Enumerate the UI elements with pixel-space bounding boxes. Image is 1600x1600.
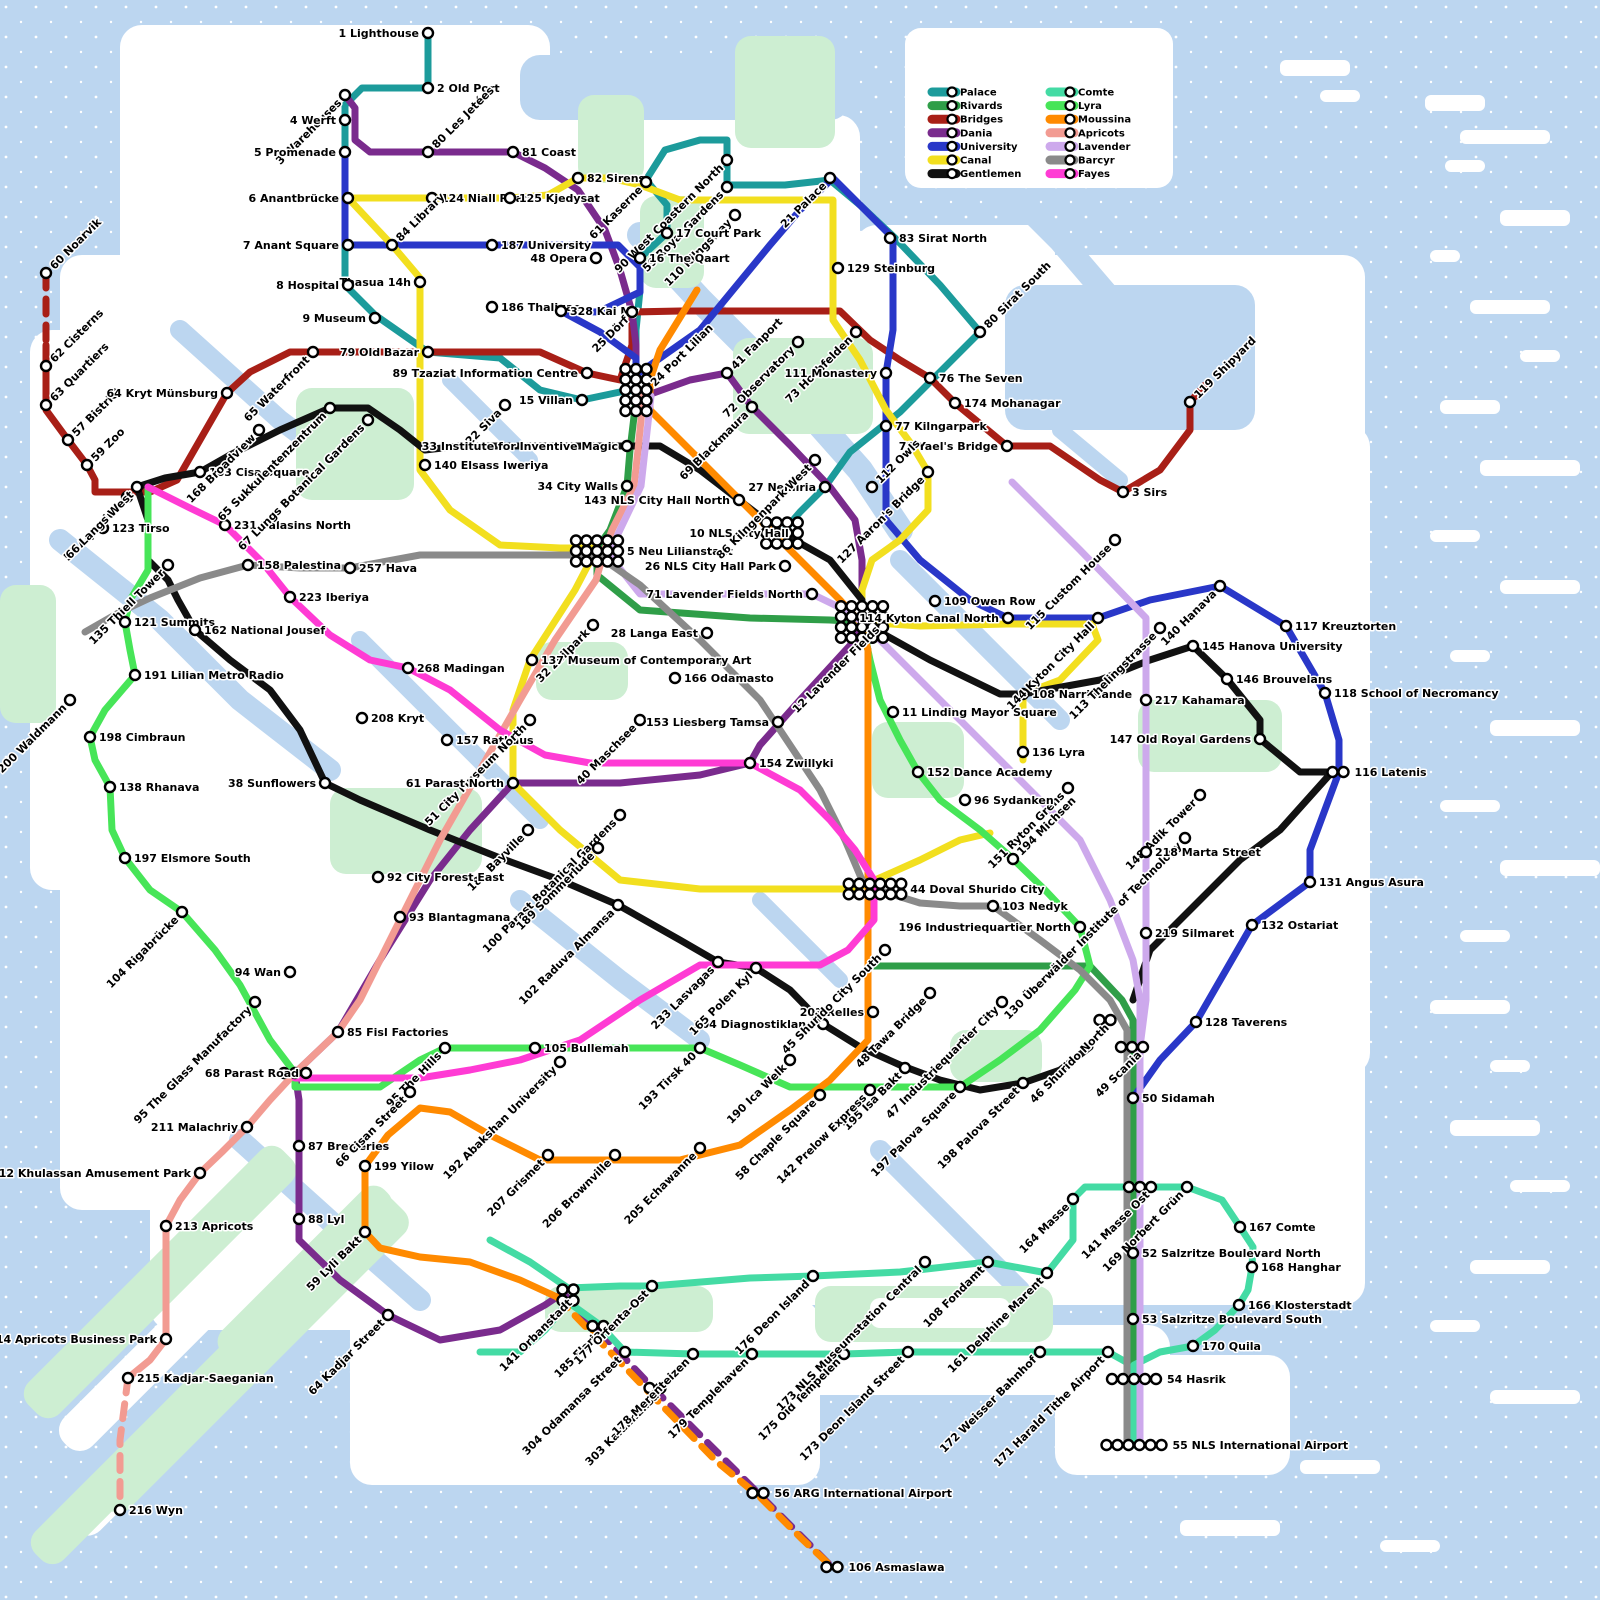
svg-text:145 Hanova University: 145 Hanova University xyxy=(1202,640,1343,653)
svg-text:83 Sirat North: 83 Sirat North xyxy=(899,232,987,245)
station-64-kryt-m-nsburg[interactable]: 64 Kryt Münsburg xyxy=(106,387,232,400)
station-77-kilngarpark[interactable]: 77 Kilngarpark xyxy=(881,420,987,433)
svg-text:Canal: Canal xyxy=(960,156,991,167)
svg-text:143 NLS City Hall North: 143 NLS City Hall North xyxy=(584,494,730,507)
svg-text:Comte: Comte xyxy=(1078,88,1114,99)
svg-text:125 Kjedysat: 125 Kjedysat xyxy=(519,192,600,205)
station-38-sunflowers[interactable]: 38 Sunflowers xyxy=(228,777,330,790)
svg-text:197 Elsmore South: 197 Elsmore South xyxy=(134,852,251,865)
station-132-ostariat[interactable]: 132 Ostariat xyxy=(1247,919,1338,932)
station-217-kahamara[interactable]: 217 Kahamara xyxy=(1141,694,1245,707)
svg-text:68 Parast Road: 68 Parast Road xyxy=(205,1067,299,1080)
station-153-liesberg-tamsa[interactable]: 153 Liesberg Tamsa xyxy=(646,716,783,729)
svg-text:61 Parast North: 61 Parast North xyxy=(406,777,504,790)
svg-text:106 Asmaslawa: 106 Asmaslawa xyxy=(849,1561,945,1574)
svg-text:103 Nedyk: 103 Nedyk xyxy=(1002,900,1069,913)
station-26-nls-city-hall-park[interactable]: 26 NLS City Hall Park xyxy=(645,560,790,573)
svg-text:174 Mohanagar: 174 Mohanagar xyxy=(964,397,1061,410)
station-143-nls-city-hall-north[interactable]: 143 NLS City Hall North xyxy=(584,494,744,507)
svg-text:88 Lyl: 88 Lyl xyxy=(308,1213,344,1226)
station-111-monastery[interactable]: 111 Monastery xyxy=(785,367,891,380)
svg-text:105 Bullemah: 105 Bullemah xyxy=(544,1042,629,1055)
station-61-parast-north[interactable]: 61 Parast North xyxy=(406,777,518,790)
station-11-linding-mayor-square[interactable]: 11 Linding Mayor Square xyxy=(888,706,1057,719)
svg-text:218 Marta Street: 218 Marta Street xyxy=(1155,846,1261,859)
svg-text:9 Museum: 9 Museum xyxy=(302,312,366,325)
station-186-thaligao[interactable]: 186 Thaligao xyxy=(487,301,581,314)
svg-text:University: University xyxy=(960,142,1018,153)
svg-text:89 Tzaziat Information Centre: 89 Tzaziat Information Centre xyxy=(393,367,578,380)
station-88-lyl[interactable]: 88 Lyl xyxy=(294,1213,344,1226)
station-125-kjedysat[interactable]: 125 Kjedysat xyxy=(505,192,600,205)
svg-text:215 Kadjar-Saeganian: 215 Kadjar-Saeganian xyxy=(137,1372,274,1385)
svg-text:16 The Qaart: 16 The Qaart xyxy=(649,252,730,265)
station-96-sydanken[interactable]: 96 Sydanken xyxy=(960,794,1054,807)
station-211-malachriy[interactable]: 211 Malachriy xyxy=(151,1121,252,1134)
svg-text:116 Latenis: 116 Latenis xyxy=(1355,766,1428,779)
svg-text:138 Rhanava: 138 Rhanava xyxy=(119,781,199,794)
svg-text:76 The Seven: 76 The Seven xyxy=(939,372,1023,385)
svg-text:117 Kreuztorten: 117 Kreuztorten xyxy=(1295,620,1396,633)
station-16-the-qaart[interactable]: 16 The Qaart xyxy=(635,252,730,265)
station-218-marta-street[interactable]: 218 Marta Street xyxy=(1141,846,1261,859)
station-1-lighthouse[interactable]: 1 Lighthouse xyxy=(339,27,433,40)
station-137-museum-of-contemporary-art[interactable]: 137 Museum of Contemporary Art xyxy=(527,654,751,667)
station-197-elsmore-south[interactable]: 197 Elsmore South xyxy=(120,852,251,865)
station-114-kyton-canal-north[interactable]: 114 Kyton Canal North xyxy=(859,612,1013,625)
svg-text:Gentlemen: Gentlemen xyxy=(960,169,1021,180)
station-213-apricots[interactable]: 213 Apricots xyxy=(161,1220,254,1233)
svg-text:166 Klosterstadt: 166 Klosterstadt xyxy=(1248,1299,1352,1312)
station-106-asmaslawa[interactable]: 106 Asmaslawa xyxy=(822,1561,945,1574)
svg-text:Rivards: Rivards xyxy=(960,101,1002,112)
station-138-rhanava[interactable]: 138 Rhanava xyxy=(105,781,199,794)
svg-text:52 Salzritze Boulevard North: 52 Salzritze Boulevard North xyxy=(1142,1247,1321,1260)
svg-text:92 City Forest East: 92 City Forest East xyxy=(387,871,504,884)
svg-text:3 Sirs: 3 Sirs xyxy=(1132,486,1168,499)
svg-text:191 Lilian Metro Radio: 191 Lilian Metro Radio xyxy=(144,669,284,682)
svg-text:170 Quila: 170 Quila xyxy=(1202,1340,1261,1353)
station-212-khulassan-amusement-park[interactable]: 212 Khulassan Amusement Park xyxy=(0,1167,205,1180)
station-215-kadjar-saeganian[interactable]: 215 Kadjar-Saeganian xyxy=(123,1372,274,1385)
station-268-madingan[interactable]: 268 Madingan xyxy=(403,662,505,675)
station-198-cimbraun[interactable]: 198 Cimbraun xyxy=(85,731,185,744)
svg-text:118 School of Necromancy: 118 School of Necromancy xyxy=(1334,687,1499,700)
svg-text:Palace: Palace xyxy=(960,88,997,99)
svg-text:196 Industriequartier North: 196 Industriequartier North xyxy=(899,921,1071,934)
svg-text:Lavender: Lavender xyxy=(1078,142,1130,153)
station-85-fisl-factories[interactable]: 85 Fisl Factories xyxy=(333,1026,449,1039)
station-5-promenade[interactable]: 5 Promenade xyxy=(254,146,350,159)
station-231-palasins-north[interactable]: 231 Palasins North xyxy=(220,519,351,532)
svg-text:6 Anantbrücke: 6 Anantbrücke xyxy=(249,192,339,205)
svg-text:137 Museum of Contemporary Art: 137 Museum of Contemporary Art xyxy=(541,654,751,667)
station-168-hanghar[interactable]: 168 Hanghar xyxy=(1247,1261,1341,1274)
svg-text:11 Linding Mayor Square: 11 Linding Mayor Square xyxy=(902,706,1057,719)
svg-text:187 University: 187 University xyxy=(501,239,591,252)
svg-text:15 Villan: 15 Villan xyxy=(519,394,573,407)
svg-text:96 Sydanken: 96 Sydanken xyxy=(974,794,1054,807)
station-129-steinburg[interactable]: 129 Steinburg xyxy=(833,262,935,275)
station-109-owen-row[interactable]: 109 Owen Row xyxy=(930,595,1036,608)
station-118-school-of-necromancy[interactable]: 118 School of Necromancy xyxy=(1320,687,1499,700)
station-128-taverens[interactable]: 128 Taverens xyxy=(1191,1016,1288,1029)
svg-text:211 Malachriy: 211 Malachriy xyxy=(151,1121,238,1134)
svg-text:223 Iberiya: 223 Iberiya xyxy=(299,591,369,604)
station-50-sidamah[interactable]: 50 Sidamah xyxy=(1128,1092,1215,1105)
station-56-arg-international-airport[interactable]: 56 ARG International Airport xyxy=(748,1487,953,1500)
station-52-salzritze-boulevard-north[interactable]: 52 Salzritze Boulevard North xyxy=(1128,1247,1321,1260)
station-166-odamasto[interactable]: 166 Odamasto xyxy=(670,672,774,685)
station-34-city-walls[interactable]: 34 City Walls xyxy=(538,480,633,493)
station-187-university[interactable]: 187 University xyxy=(487,239,591,252)
station-162-national-jousef[interactable]: 162 National Jousef xyxy=(190,624,325,637)
svg-text:216 Wyn: 216 Wyn xyxy=(129,1504,183,1517)
svg-text:Fayes: Fayes xyxy=(1078,169,1110,180)
svg-text:257 Hava: 257 Hava xyxy=(359,562,417,575)
station-76-the-seven[interactable]: 76 The Seven xyxy=(925,372,1023,385)
station-6-anantbr-cke[interactable]: 6 Anantbrücke xyxy=(249,192,353,205)
svg-text:213 Apricots: 213 Apricots xyxy=(175,1220,254,1233)
svg-text:81 Coast: 81 Coast xyxy=(522,146,576,159)
svg-text:77 Kilngarpark: 77 Kilngarpark xyxy=(895,420,987,433)
station-145-hanova-university[interactable]: 145 Hanova University xyxy=(1188,640,1343,653)
svg-text:167 Comte: 167 Comte xyxy=(1249,1221,1316,1234)
legend: PalaceRivardsBridgesDaniaUniversityCanal… xyxy=(905,28,1173,188)
station-7-anant-square[interactable]: 7 Anant Square xyxy=(243,239,353,252)
svg-text:114 Kyton Canal North: 114 Kyton Canal North xyxy=(859,612,999,625)
station-33-institute-for-inventive-magic[interactable]: 33 Institute for Inventive Magic xyxy=(422,440,632,453)
svg-text:28 Langa East: 28 Langa East xyxy=(611,627,698,640)
svg-text:54 Hasrik: 54 Hasrik xyxy=(1167,1373,1227,1386)
svg-text:129 Steinburg: 129 Steinburg xyxy=(847,262,935,275)
station-92-city-forest-east[interactable]: 92 City Forest East xyxy=(373,871,504,884)
station-146-brouvelans[interactable]: 146 Brouvelans xyxy=(1222,673,1333,686)
svg-text:17 Court Park: 17 Court Park xyxy=(676,227,762,240)
svg-text:208 Kryt: 208 Kryt xyxy=(371,712,424,725)
station-152-dance-academy[interactable]: 152 Dance Academy xyxy=(913,766,1052,779)
svg-text:Dania: Dania xyxy=(960,128,992,139)
svg-text:131 Angus Asura: 131 Angus Asura xyxy=(1319,876,1424,889)
station-17-court-park[interactable]: 17 Court Park xyxy=(662,227,762,240)
svg-text:162 National Jousef: 162 National Jousef xyxy=(204,624,325,637)
svg-text:85 Fisl Factories: 85 Fisl Factories xyxy=(347,1026,449,1039)
svg-text:94 Wan: 94 Wan xyxy=(235,966,281,979)
svg-text:212 Khulassan Amusement Park: 212 Khulassan Amusement Park xyxy=(0,1167,192,1180)
station-117-kreuztorten[interactable]: 117 Kreuztorten xyxy=(1281,620,1396,633)
svg-text:219 Silmaret: 219 Silmaret xyxy=(1155,927,1234,940)
station-71-lavender-fields-north[interactable]: 71 Lavender Fields North xyxy=(646,588,817,601)
svg-text:158 Palestina: 158 Palestina xyxy=(257,559,341,572)
svg-text:82 Sirens: 82 Sirens xyxy=(587,172,646,185)
station-54-hasrik[interactable]: 54 Hasrik xyxy=(1107,1373,1227,1386)
svg-text:140 Elsass Iweriya: 140 Elsass Iweriya xyxy=(434,459,548,472)
svg-text:34 City Walls: 34 City Walls xyxy=(538,480,619,493)
svg-text:109 Owen Row: 109 Owen Row xyxy=(944,595,1036,608)
station-121-summits[interactable]: 121 Summits xyxy=(120,616,215,629)
station-89-tzaziat-information-centre[interactable]: 89 Tzaziat Information Centre xyxy=(393,367,592,380)
station-68-parast-road[interactable]: 68 Parast Road xyxy=(205,1067,311,1080)
station-191-lilian-metro-radio[interactable]: 191 Lilian Metro Radio xyxy=(130,669,284,682)
svg-text:198 Cimbraun: 198 Cimbraun xyxy=(99,731,185,744)
svg-text:146 Brouvelans: 146 Brouvelans xyxy=(1236,673,1333,686)
svg-text:154 Zwillyki: 154 Zwillyki xyxy=(759,757,834,770)
svg-text:44 Doval Shurido City: 44 Doval Shurido City xyxy=(910,883,1044,896)
svg-text:124 Niall Road: 124 Niall Road xyxy=(441,192,531,205)
station-3-sirs[interactable]: 3 Sirs xyxy=(1118,486,1168,499)
station-154-zwillyki[interactable]: 154 Zwillyki xyxy=(745,757,834,770)
svg-text:128 Taverens: 128 Taverens xyxy=(1205,1016,1288,1029)
svg-text:38 Sunflowers: 38 Sunflowers xyxy=(228,777,316,790)
map-canvas: 24 Port Lilian5 Neu Lilianstadt10 NLS Ci… xyxy=(0,0,1600,1600)
svg-text:168 Hanghar: 168 Hanghar xyxy=(1261,1261,1341,1274)
station-116-latenis[interactable]: 116 Latenis xyxy=(1328,766,1428,779)
svg-text:217 Kahamara: 217 Kahamara xyxy=(1155,694,1245,707)
svg-text:79 Old Bazar: 79 Old Bazar xyxy=(340,346,420,359)
svg-text:153 Liesberg Tamsa: 153 Liesberg Tamsa xyxy=(646,716,769,729)
svg-text:Lyra: Lyra xyxy=(1078,101,1102,112)
station-147-old-royal-gardens[interactable]: 147 Old Royal Gardens xyxy=(1110,733,1265,746)
svg-text:147 Old Royal Gardens: 147 Old Royal Gardens xyxy=(1110,733,1252,746)
svg-text:199 Yilow: 199 Yilow xyxy=(374,1160,434,1173)
station-174-mohanagar[interactable]: 174 Mohanagar xyxy=(950,397,1061,410)
station-158-palestina[interactable]: 158 Palestina xyxy=(243,559,341,572)
station-140-elsass-iweriya[interactable]: 140 Elsass Iweriya xyxy=(420,459,548,472)
svg-text:268 Madingan: 268 Madingan xyxy=(417,662,505,675)
svg-text:Barcyr: Barcyr xyxy=(1078,156,1115,167)
svg-text:56 ARG International Airport: 56 ARG International Airport xyxy=(775,1487,953,1500)
station-214-apricots-business-park[interactable]: 214 Apricots Business Park xyxy=(0,1333,171,1346)
svg-text:132 Ostariat: 132 Ostariat xyxy=(1261,919,1338,932)
svg-text:1 Lighthouse: 1 Lighthouse xyxy=(339,27,419,40)
svg-text:152 Dance Academy: 152 Dance Academy xyxy=(927,766,1052,779)
svg-text:4 Werft: 4 Werft xyxy=(290,114,336,127)
transit-map: 24 Port Lilian5 Neu Lilianstadt10 NLS Ci… xyxy=(0,0,1600,1600)
station-83-sirat-north[interactable]: 83 Sirat North xyxy=(885,232,987,245)
svg-text:33 Institute for Inventive Mag: 33 Institute for Inventive Magic xyxy=(422,440,618,453)
svg-text:50 Sidamah: 50 Sidamah xyxy=(1142,1092,1215,1105)
svg-text:111 Monastery: 111 Monastery xyxy=(785,367,877,380)
svg-text:5 Promenade: 5 Promenade xyxy=(254,146,336,159)
station-93-blantagmana[interactable]: 93 Blantagmana xyxy=(395,911,510,924)
svg-text:93 Blantagmana: 93 Blantagmana xyxy=(409,911,510,924)
svg-text:Bridges: Bridges xyxy=(960,115,1003,126)
svg-text:214 Apricots Business Park: 214 Apricots Business Park xyxy=(0,1333,158,1346)
svg-text:55 NLS International Airport: 55 NLS International Airport xyxy=(1173,1439,1349,1452)
svg-text:64 Kryt Münsburg: 64 Kryt Münsburg xyxy=(106,387,218,400)
station-53-salzritze-boulevard-south[interactable]: 53 Salzritze Boulevard South xyxy=(1128,1313,1322,1326)
svg-text:123 Tirso: 123 Tirso xyxy=(112,522,170,535)
svg-text:26 NLS City Hall Park: 26 NLS City Hall Park xyxy=(645,560,777,573)
station-28-langa-east[interactable]: 28 Langa East xyxy=(611,627,712,640)
station-166-klosterstadt[interactable]: 166 Klosterstadt xyxy=(1234,1299,1352,1312)
svg-text:8 Hospital: 8 Hospital xyxy=(276,279,339,292)
station-55-nls-international-airport[interactable]: 55 NLS International Airport xyxy=(1102,1439,1349,1452)
svg-text:7 Anant Square: 7 Anant Square xyxy=(243,239,339,252)
svg-text:48 Opera: 48 Opera xyxy=(530,252,587,265)
svg-text:53 Salzritze Boulevard South: 53 Salzritze Boulevard South xyxy=(1142,1313,1322,1326)
svg-text:Apricots: Apricots xyxy=(1078,128,1125,139)
svg-text:136 Lyra: 136 Lyra xyxy=(1032,746,1085,759)
station-196-industriequartier-north[interactable]: 196 Industriequartier North xyxy=(899,921,1085,934)
station-105-bullemah[interactable]: 105 Bullemah xyxy=(530,1042,629,1055)
svg-text:71 Lavender Fields North: 71 Lavender Fields North xyxy=(646,588,803,601)
svg-text:166 Odamasto: 166 Odamasto xyxy=(684,672,774,685)
station-131-angus-asura[interactable]: 131 Angus Asura xyxy=(1305,876,1424,889)
svg-text:Moussina: Moussina xyxy=(1078,115,1131,126)
station-219-silmaret[interactable]: 219 Silmaret xyxy=(1141,927,1234,940)
